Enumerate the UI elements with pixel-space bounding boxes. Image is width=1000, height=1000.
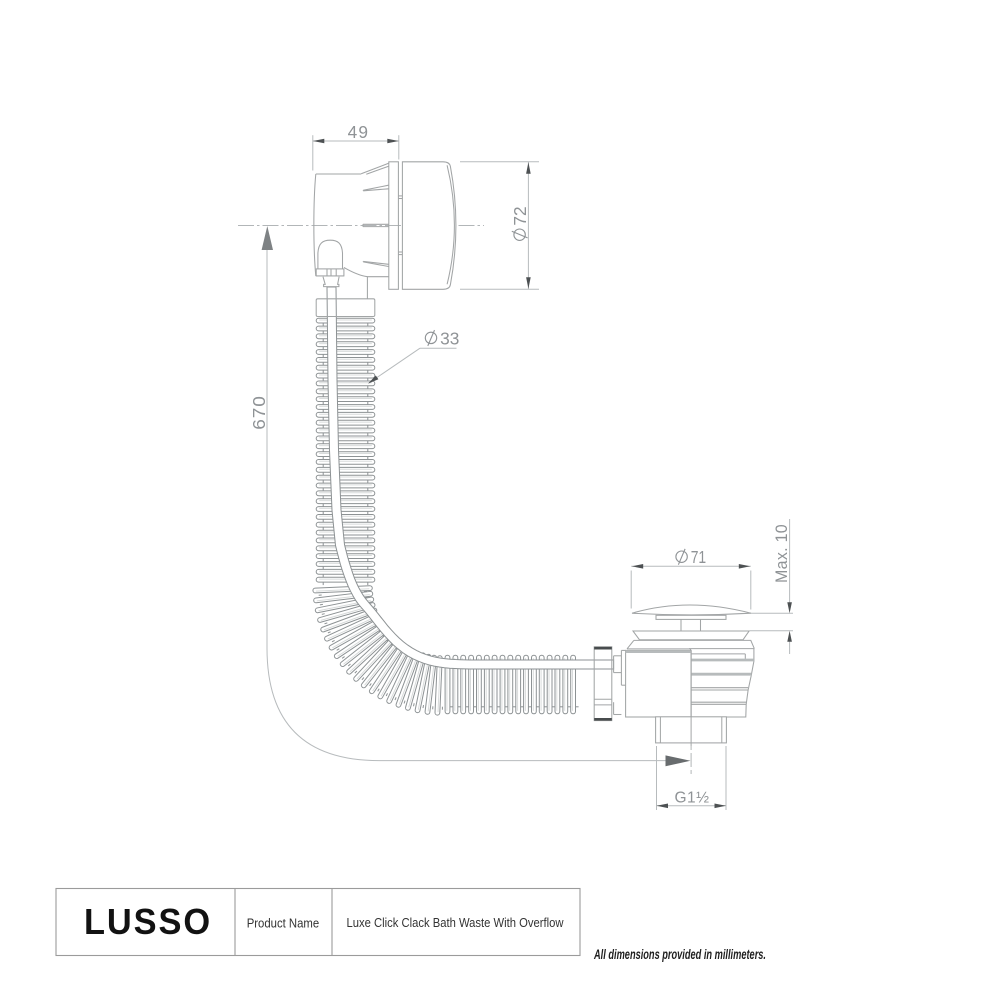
svg-text:71: 71 [691, 547, 707, 567]
svg-text:33: 33 [440, 328, 459, 348]
svg-text:Product Name: Product Name [247, 915, 320, 930]
svg-text:670: 670 [249, 395, 269, 430]
svg-text:All dimensions provided in mil: All dimensions provided in millimeters. [593, 947, 766, 962]
svg-text:72: 72 [510, 206, 530, 225]
svg-text:Max. 10: Max. 10 [772, 524, 791, 583]
svg-text:Luxe Click Clack Bath Waste Wi: Luxe Click Clack Bath Waste With Overflo… [347, 915, 565, 930]
svg-text:LUSSO: LUSSO [84, 901, 212, 942]
svg-text:G1½: G1½ [674, 789, 709, 806]
svg-text:49: 49 [348, 122, 370, 142]
